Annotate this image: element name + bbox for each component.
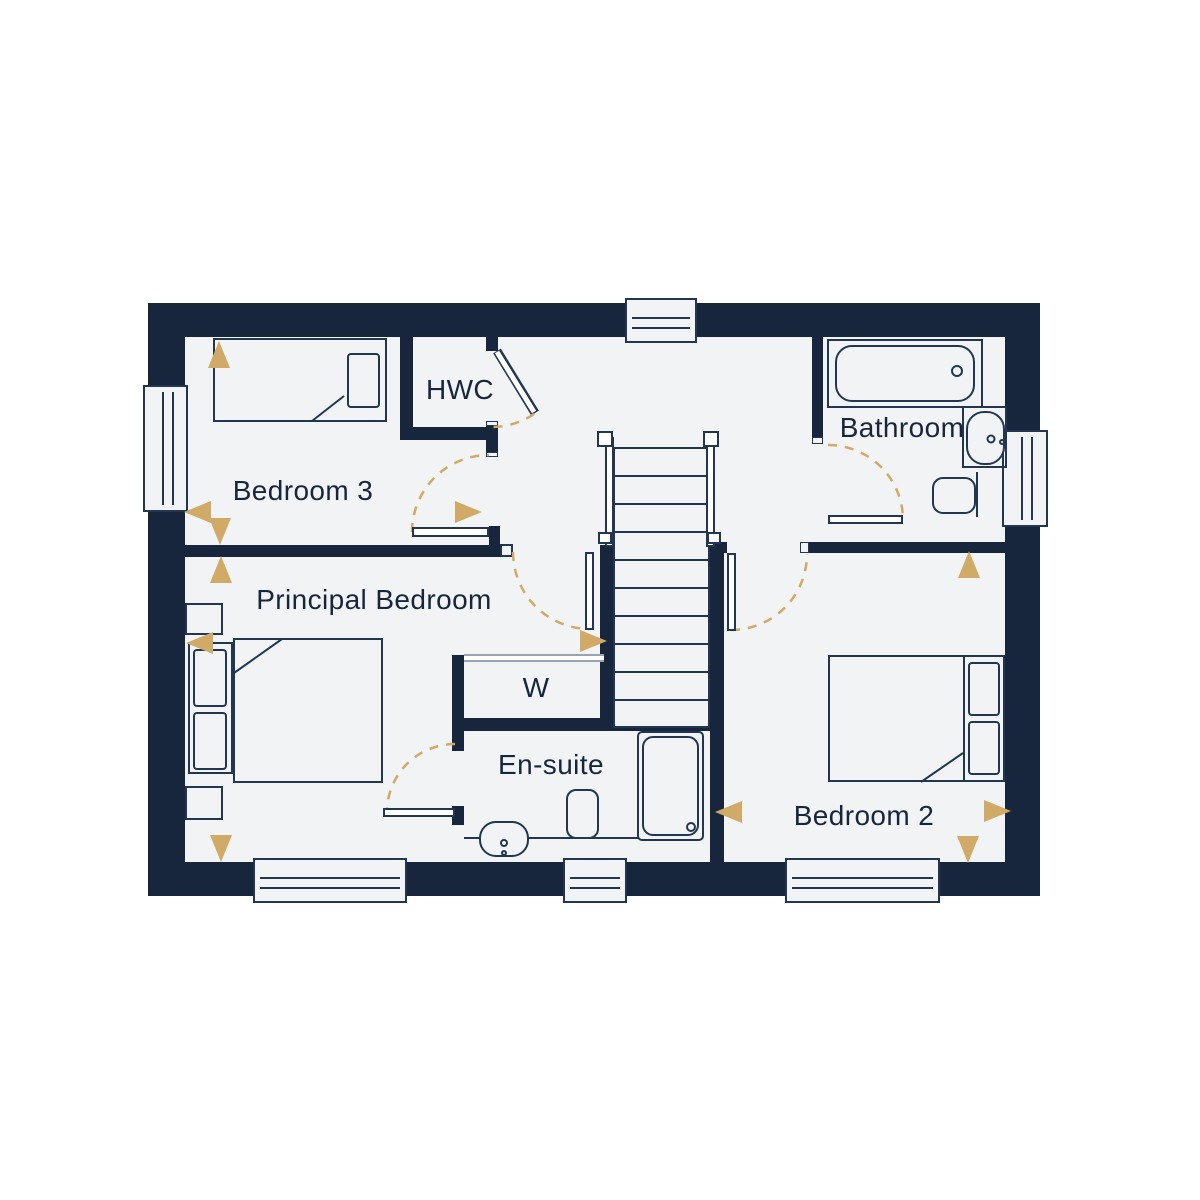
direction-arrow-up-icon [958, 551, 980, 578]
window-bedroom2-bottom [785, 858, 940, 903]
staircase-icon [613, 447, 710, 728]
stair-handrail-right [706, 437, 715, 547]
pillow [347, 353, 380, 408]
door-leaf-bathroom [828, 515, 903, 524]
window-principal-bottom [253, 858, 407, 903]
room-label-hwc: HWC [410, 373, 510, 407]
direction-arrow-down-icon [210, 835, 232, 862]
wall-end-cap [500, 544, 513, 557]
post-cap [486, 452, 498, 457]
wall-exterior-top [148, 303, 1040, 337]
door-leaf-bedroom2 [727, 553, 736, 631]
double-bed-icon [233, 638, 383, 783]
wall-bedroom3-principal [185, 545, 501, 557]
wall-end-cap [800, 542, 809, 553]
wardrobe-doors-icon [464, 654, 604, 662]
stair-newel-post [598, 532, 612, 544]
direction-arrow-left-icon [186, 632, 213, 654]
pillow [968, 662, 1000, 716]
door-leaf-ensuite [383, 808, 455, 817]
pillow [193, 649, 227, 707]
stair-newel-post [707, 532, 721, 544]
nightstand [185, 786, 223, 820]
room-label-principal-bedroom: Principal Bedroom [224, 583, 524, 617]
wall-wardrobe-left [452, 655, 464, 718]
stair-newel-post [597, 431, 613, 447]
window-ensuite-bottom [563, 858, 627, 903]
door-leaf-principal [585, 552, 594, 630]
post-cap [486, 421, 498, 426]
window-landing-top [625, 298, 697, 343]
door-post-hwc-hinge [486, 337, 498, 351]
room-label-wardrobe: W [496, 671, 576, 705]
stair-handrail-left [605, 437, 614, 547]
direction-arrow-down-icon [957, 836, 979, 863]
room-label-bathroom: Bathroom [802, 411, 1002, 445]
direction-arrow-left-icon [715, 801, 742, 823]
direction-arrow-up-icon [208, 341, 230, 368]
room-label-ensuite: En-suite [451, 748, 651, 782]
floor-plan: Bedroom 3 HWC Bathroom Principal Bedroom… [0, 0, 1200, 1200]
room-label-bedroom3: Bedroom 3 [203, 474, 403, 508]
direction-arrow-right-icon [455, 501, 482, 523]
pillow [968, 721, 1000, 775]
pillow [193, 712, 227, 770]
direction-arrow-right-icon [580, 630, 607, 652]
door-post-bedroom3 [489, 526, 500, 548]
window-bathroom-right [1002, 430, 1048, 527]
direction-arrow-right-icon [984, 800, 1011, 822]
door-leaf-bedroom3 [412, 527, 489, 537]
stair-newel-post [703, 431, 719, 447]
window-bedroom3-left [143, 385, 188, 512]
room-label-bedroom2: Bedroom 2 [764, 799, 964, 833]
direction-arrow-up-icon [210, 556, 232, 583]
direction-arrow-down-icon [209, 518, 231, 545]
nightstand [185, 603, 223, 635]
wall-hwc-bottom [400, 427, 490, 440]
